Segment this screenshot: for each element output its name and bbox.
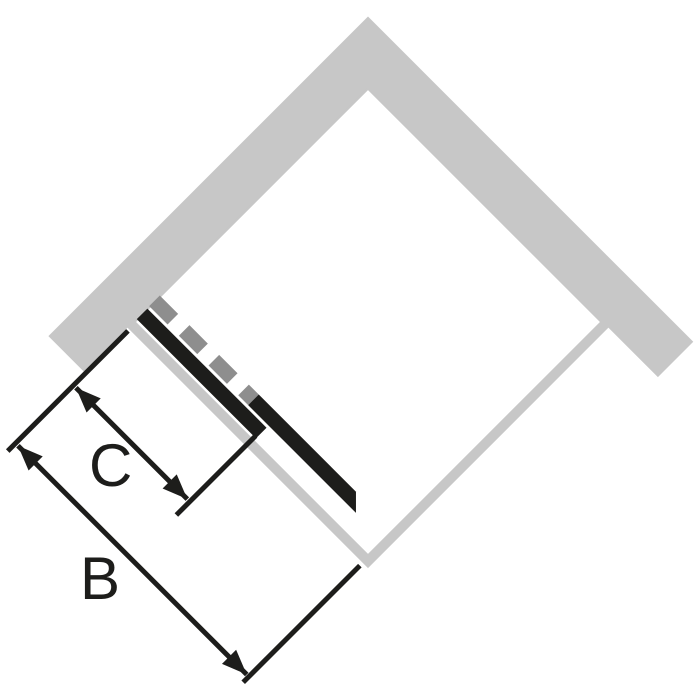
svg-text:B: B xyxy=(80,545,120,612)
svg-text:C: C xyxy=(89,432,132,499)
